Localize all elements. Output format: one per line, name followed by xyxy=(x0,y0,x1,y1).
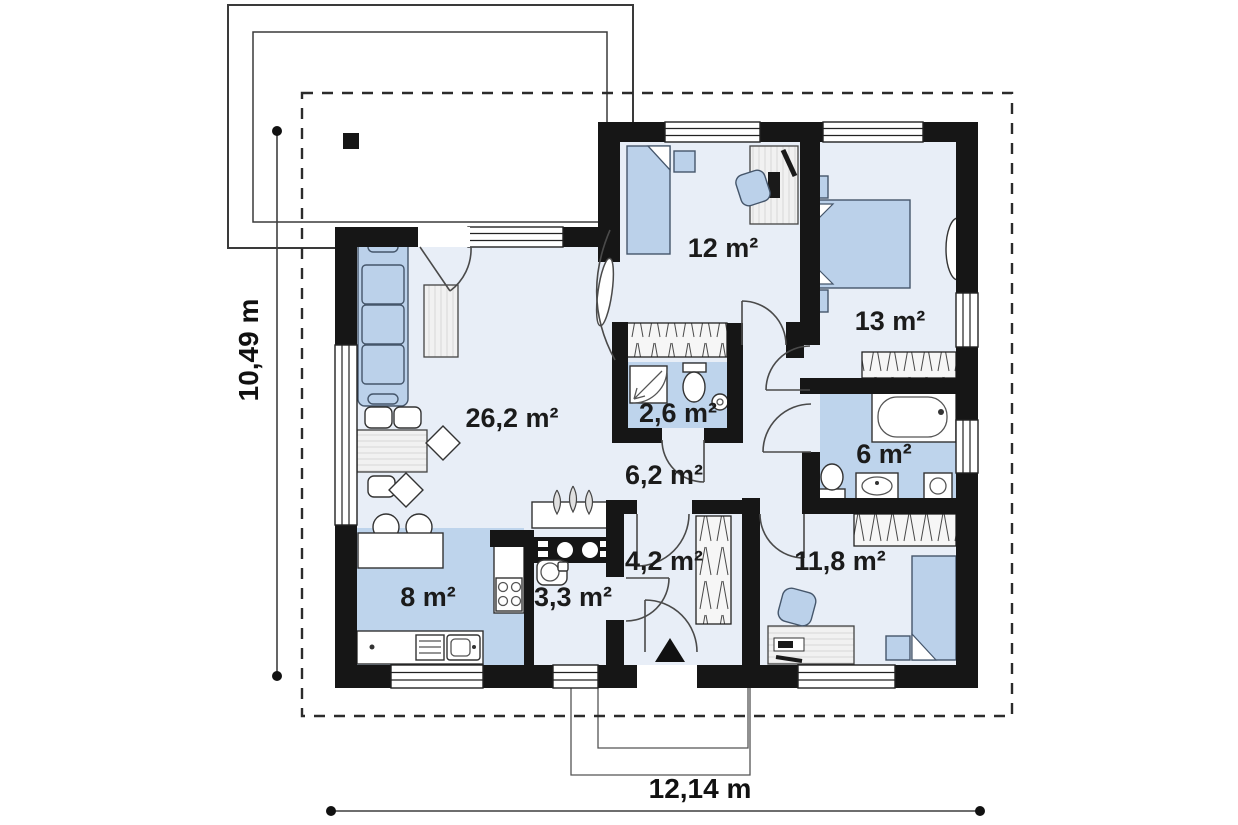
dining-table xyxy=(357,430,427,472)
label-bedroom-right: 13 m² xyxy=(855,306,926,336)
chimney-marker xyxy=(343,133,359,149)
washbasin xyxy=(856,473,898,499)
window xyxy=(335,345,357,525)
toilet xyxy=(819,464,845,499)
label-bedroom-top: 12 m² xyxy=(688,233,759,263)
label-kitchen: 8 m² xyxy=(400,582,456,612)
entrance-porch xyxy=(571,686,750,775)
window xyxy=(468,227,563,247)
terrace-outline xyxy=(228,5,633,248)
window xyxy=(956,293,978,347)
label-utility: 3,3 m² xyxy=(534,582,612,612)
wardrobe xyxy=(862,352,956,378)
sofa xyxy=(358,240,408,406)
label-entry-hall: 4,2 m² xyxy=(625,546,703,576)
label-bedroom-bottom: 11,8 m² xyxy=(794,546,886,576)
nightstand xyxy=(674,151,695,172)
washing-machine xyxy=(924,473,952,499)
floor-plan: 26,2 m² 12 m² 13 m² 2,6 m² 6,2 m² 6 m² 4… xyxy=(0,0,1238,825)
stove-strip xyxy=(534,537,612,563)
cooktop xyxy=(496,578,522,611)
wardrobe xyxy=(854,514,956,546)
coffee-table xyxy=(424,285,458,357)
window xyxy=(665,122,760,142)
bed xyxy=(912,556,956,660)
label-hallway: 6,2 m² xyxy=(625,460,703,490)
double-bed xyxy=(806,200,910,288)
bar-counter xyxy=(358,533,443,568)
width-dimension-label: 12,14 m xyxy=(649,773,752,804)
label-toilet: 2,6 m² xyxy=(639,398,717,428)
kitchen-drawers xyxy=(416,635,444,660)
window xyxy=(798,665,895,688)
window xyxy=(956,420,978,473)
label-bathroom: 6 m² xyxy=(856,439,912,469)
desk xyxy=(768,626,854,664)
nightstand xyxy=(886,636,910,660)
counter-dot xyxy=(370,645,375,650)
wardrobe xyxy=(625,323,727,357)
toilet xyxy=(683,363,706,402)
window xyxy=(823,122,923,142)
bed xyxy=(627,146,670,254)
window xyxy=(553,665,598,688)
kitchen-sink xyxy=(447,635,480,660)
floor-plan-page: 26,2 m² 12 m² 13 m² 2,6 m² 6,2 m² 6 m² 4… xyxy=(0,0,1238,825)
bathtub xyxy=(872,392,956,442)
label-living-room: 26,2 m² xyxy=(465,403,558,433)
dimension-width: 12,14 m xyxy=(326,773,985,816)
height-dimension-label: 10,49 m xyxy=(233,299,264,402)
window xyxy=(391,665,483,688)
